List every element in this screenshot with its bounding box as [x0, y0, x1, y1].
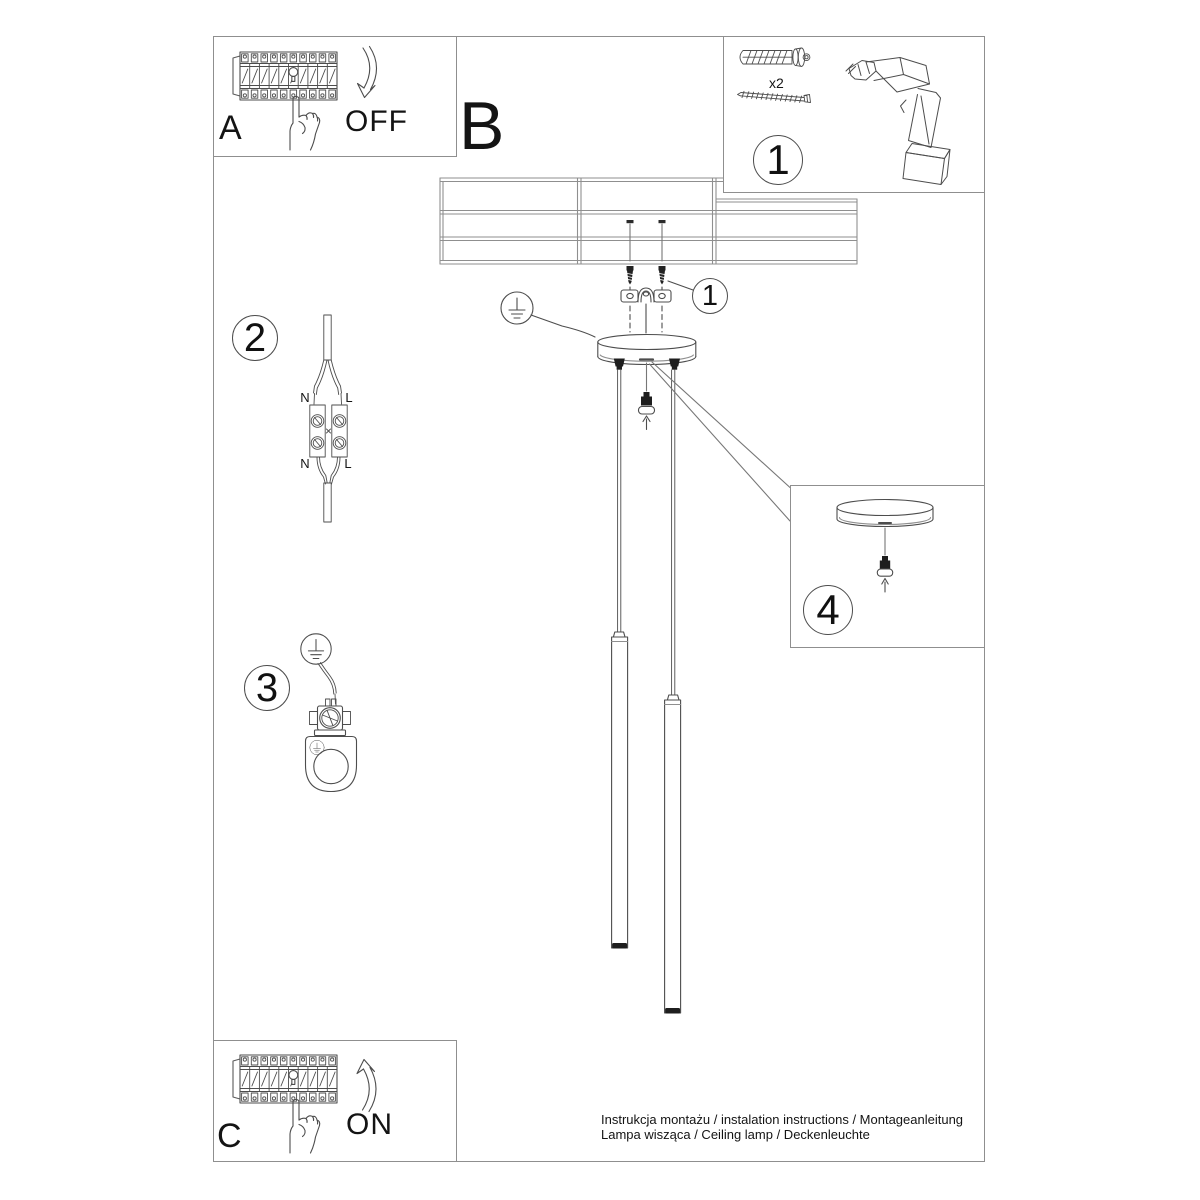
breaker-off-state: OFF: [345, 105, 408, 139]
panel-a-frame: [213, 36, 457, 157]
instruction-sheet: A OFF B x2 1 1 2 3 4 N L N L C ON Instru…: [0, 0, 1200, 1200]
dowel-qty-label: x2: [769, 75, 784, 91]
tools-step-badge: 1: [753, 135, 803, 185]
breaker-on-state: ON: [346, 1108, 393, 1142]
terminal-label-l-top: L: [341, 390, 357, 405]
terminal-label-n-top: N: [297, 390, 313, 405]
terminal-label-n-bottom: N: [297, 456, 313, 471]
panel-c-frame: [213, 1040, 457, 1162]
panel-a-label: A: [219, 109, 242, 148]
wiring-step-badge: 2: [232, 315, 278, 361]
section-b-label: B: [459, 92, 504, 160]
ground-step-badge: 3: [244, 665, 290, 711]
terminal-label-l-bottom: L: [340, 456, 356, 471]
footer-title-line1: Instrukcja montażu / instalation instruc…: [601, 1113, 963, 1128]
canopy-step-badge: 4: [803, 585, 853, 635]
footer-title-line2: Lampa wisząca / Ceiling lamp / Deckenleu…: [601, 1128, 870, 1143]
mount-step-badge: 1: [692, 278, 728, 314]
panel-c-label: C: [217, 1117, 242, 1156]
